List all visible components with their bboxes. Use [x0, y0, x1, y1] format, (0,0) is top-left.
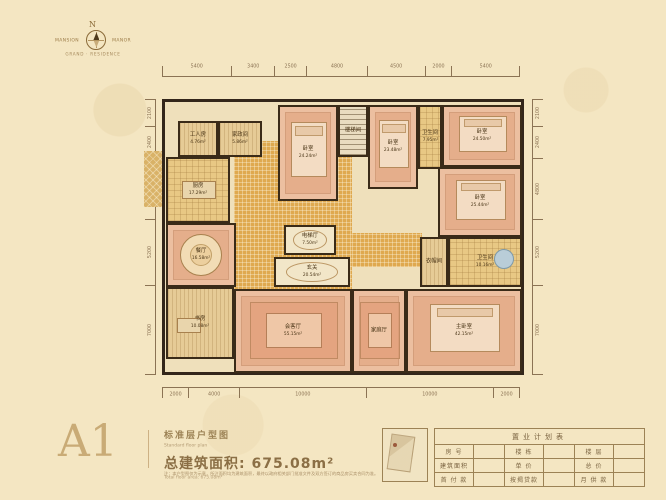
compass-icon: [86, 30, 106, 50]
disclaimer-text: 注：本户型图仅为示意，所注面积均为建筑面积，最终以政府相关部门批准文件及双方签订…: [164, 470, 413, 476]
table-value-cell: [544, 459, 575, 473]
table-value-cell: [474, 445, 505, 459]
plan-type-title: 标准层户型图: [164, 428, 334, 441]
room-label: 卫生间7.95m²: [420, 130, 440, 144]
dimension-segment: 10000: [366, 387, 493, 398]
table-label-cell: 建筑面积: [435, 459, 474, 473]
unit-label: A1: [58, 420, 118, 464]
location-marker-icon: [393, 443, 397, 447]
room-maid-room: 工人房4.76m²: [178, 121, 218, 157]
plan-type-subtitle: Standard floor plan: [164, 443, 292, 448]
room-bedroom-3: 卧室24.50m²: [442, 105, 522, 167]
dimension-line-right: 21002400480052007000: [532, 99, 543, 375]
dimension-segment: 2400: [532, 126, 543, 157]
brand-logo: N MANSION MANOR GRAND · RESIDENCE: [48, 20, 138, 58]
dimension-segment: 4000: [188, 387, 239, 398]
room-label: 工人房4.76m²: [180, 132, 216, 146]
table-value-cell: [474, 473, 505, 487]
room-label: 衣帽间: [422, 259, 446, 266]
dimension-segment: 4500: [367, 66, 424, 77]
room-label: 卧室25.44m²: [440, 195, 520, 209]
room-stair-well: 楼梯间: [338, 105, 368, 157]
room-dining-room: 餐厅16.58m²: [166, 223, 236, 287]
floor-plan: 工人房4.76m²家政间5.86m²厨房17.29m²卧室24.24m²楼梯间卧…: [138, 85, 530, 383]
logo-right-text: MANOR: [113, 37, 132, 42]
room-label: 楼梯间: [340, 128, 366, 135]
room-bath-2: 卫生间7.95m²: [418, 105, 442, 169]
dimension-segment: 2100: [532, 99, 543, 126]
room-label: 卧室23.48m²: [370, 140, 416, 154]
dimension-segment: 4800: [306, 66, 367, 77]
table-label-cell: 月 供 款: [575, 473, 614, 487]
dimension-segment: 2000: [493, 387, 520, 398]
table-label-cell: 按揭贷款: [505, 473, 544, 487]
room-label: 卫生间10.16m²: [450, 255, 520, 269]
dimension-segment: 3400: [231, 66, 275, 77]
dimension-segment: 2000: [425, 66, 451, 77]
table-value-cell: [544, 473, 575, 487]
table-label-cell: 总 价: [575, 459, 614, 473]
room-bedroom-4: 卧室25.44m²: [438, 167, 522, 237]
room-label: 书房10.08m²: [168, 316, 232, 330]
table-value-cell: [544, 445, 575, 459]
dimension-segment: 7000: [532, 285, 543, 375]
dimension-segment: 4800: [532, 158, 543, 219]
room-study: 书房10.08m²: [166, 287, 234, 359]
room-label: 玄关20.54m²: [276, 265, 348, 279]
room-laundry-room: 家政间5.86m²: [218, 121, 262, 157]
room-elevator-hall: 电梯厅7.50m²: [284, 225, 336, 255]
room-family-room: 家庭厅: [352, 289, 406, 373]
room-label: 卧室24.24m²: [280, 146, 336, 160]
dimension-segment: 2500: [274, 66, 306, 77]
room-label: 卧室24.50m²: [444, 129, 520, 143]
room-label: 会客厅55.15m²: [236, 324, 350, 338]
zone-balcony-left: [144, 151, 162, 207]
dimension-line-top: 5400340025004800450020005400: [162, 66, 520, 77]
dimension-segment: 2000: [162, 387, 188, 398]
table-label-cell: 楼 层: [575, 445, 614, 459]
room-label: 家庭厅: [354, 328, 404, 335]
dimension-line-bottom: 2000400010000100002000: [162, 387, 520, 398]
logo-subtitle: GRAND · RESIDENCE: [62, 52, 125, 57]
dimension-segment: 10000: [239, 387, 366, 398]
room-master-bedroom: 主卧室42.15m²: [406, 289, 522, 373]
logo-left-text: MANSION: [55, 37, 79, 42]
table-label-cell: 房 号: [435, 445, 474, 459]
title-divider: [148, 430, 149, 468]
table-value-cell: [614, 459, 645, 473]
table-label-cell: 楼 栋: [505, 445, 544, 459]
purchase-table-title: 置业计划表: [435, 429, 645, 445]
zone-wing-corridor: [352, 233, 422, 267]
room-foyer: 玄关20.54m²: [274, 257, 350, 287]
table-value-cell: [614, 445, 645, 459]
room-guest-suite: 卧室24.24m²: [278, 105, 338, 201]
table-label-cell: 单 价: [505, 459, 544, 473]
dimension-segment: 5200: [532, 219, 543, 285]
room-label: 餐厅16.58m²: [168, 248, 234, 262]
room-living-room: 会客厅55.15m²: [234, 289, 352, 373]
room-label: 电梯厅7.50m²: [286, 233, 334, 247]
table-value-cell: [614, 473, 645, 487]
room-label: 主卧室42.15m²: [408, 324, 520, 338]
dimension-segment: 5400: [451, 66, 521, 77]
room-kitchen: 厨房17.29m²: [166, 157, 230, 223]
compass-north-label: N: [48, 20, 138, 29]
room-bedroom-2: 卧室23.48m²: [368, 105, 418, 189]
room-master-bath: 卫生间10.16m²: [448, 237, 522, 287]
room-cloakroom: 衣帽间: [420, 237, 448, 287]
site-plan-thumbnail: [382, 428, 428, 482]
purchase-plan-table: 置业计划表房 号楼 栋楼 层建筑面积单 价总 价首 付 款按揭贷款月 供 款: [434, 428, 645, 487]
table-label-cell: 首 付 款: [435, 473, 474, 487]
table-value-cell: [474, 459, 505, 473]
dimension-segment: 5400: [162, 66, 231, 77]
room-label: 家政间5.86m²: [220, 132, 260, 146]
room-label: 厨房17.29m²: [168, 183, 228, 197]
